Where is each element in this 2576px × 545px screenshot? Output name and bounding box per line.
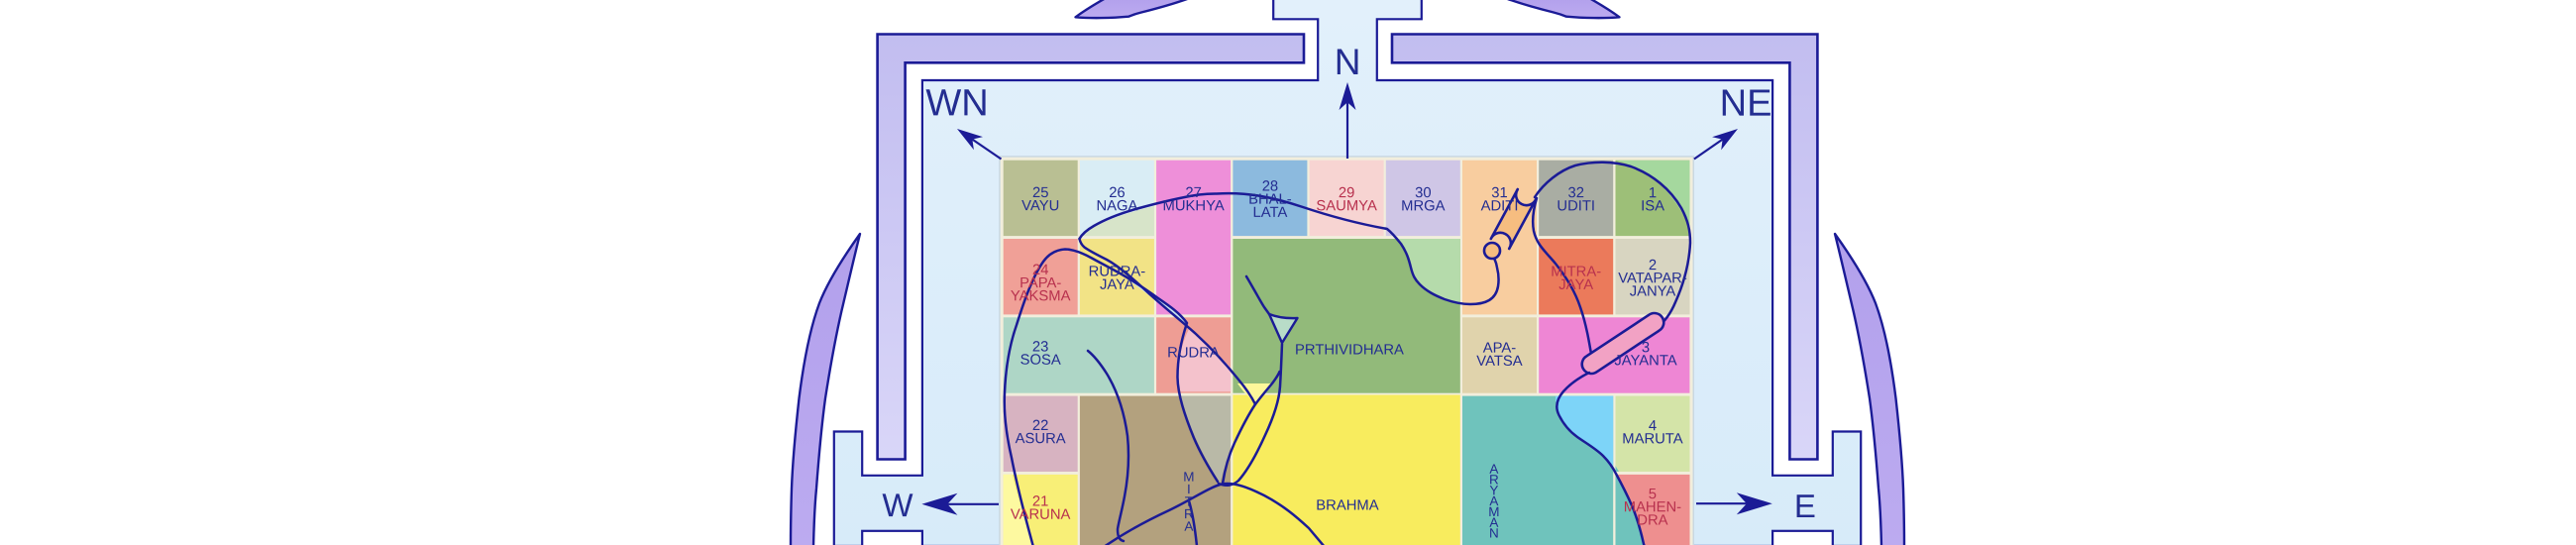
svg-text:YAKSMA: YAKSMA bbox=[1011, 288, 1071, 304]
svg-text:ADITI: ADITI bbox=[1481, 198, 1519, 214]
svg-text:WN: WN bbox=[925, 82, 988, 124]
svg-text:VATSA: VATSA bbox=[1476, 354, 1522, 370]
svg-text:E: E bbox=[1794, 488, 1816, 524]
svg-text:DRA: DRA bbox=[1637, 513, 1667, 529]
svg-text:A: A bbox=[1184, 519, 1193, 534]
svg-text:JAYANTA: JAYANTA bbox=[1614, 353, 1676, 369]
svg-text:RUDRA: RUDRA bbox=[1167, 345, 1220, 361]
svg-text:W: W bbox=[882, 487, 913, 523]
svg-text:LATA: LATA bbox=[1253, 205, 1288, 221]
svg-text:MRGA: MRGA bbox=[1401, 198, 1446, 214]
svg-text:JAYA: JAYA bbox=[1100, 277, 1134, 293]
svg-text:JANYA: JANYA bbox=[1630, 283, 1676, 299]
svg-text:MUKHYA: MUKHYA bbox=[1163, 198, 1225, 214]
svg-text:PRTHIVIDHARA: PRTHIVIDHARA bbox=[1295, 342, 1404, 358]
svg-text:BRAHMA: BRAHMA bbox=[1316, 497, 1378, 513]
svg-text:NE: NE bbox=[1720, 83, 1772, 125]
svg-text:ISA: ISA bbox=[1641, 198, 1664, 214]
svg-text:N: N bbox=[1335, 42, 1361, 82]
svg-text:NAGA: NAGA bbox=[1096, 198, 1137, 214]
svg-text:MARUTA: MARUTA bbox=[1622, 431, 1683, 447]
svg-text:VAYU: VAYU bbox=[1021, 198, 1059, 214]
svg-text:SAUMYA: SAUMYA bbox=[1316, 198, 1377, 214]
svg-text:UDITI: UDITI bbox=[1556, 198, 1595, 214]
svg-text:ASURA: ASURA bbox=[1016, 431, 1066, 447]
svg-text:SOSA: SOSA bbox=[1020, 353, 1061, 369]
svg-text:VARUNA: VARUNA bbox=[1011, 507, 1071, 523]
svg-text:N: N bbox=[1489, 526, 1499, 541]
svg-text:JAYA: JAYA bbox=[1558, 277, 1593, 293]
